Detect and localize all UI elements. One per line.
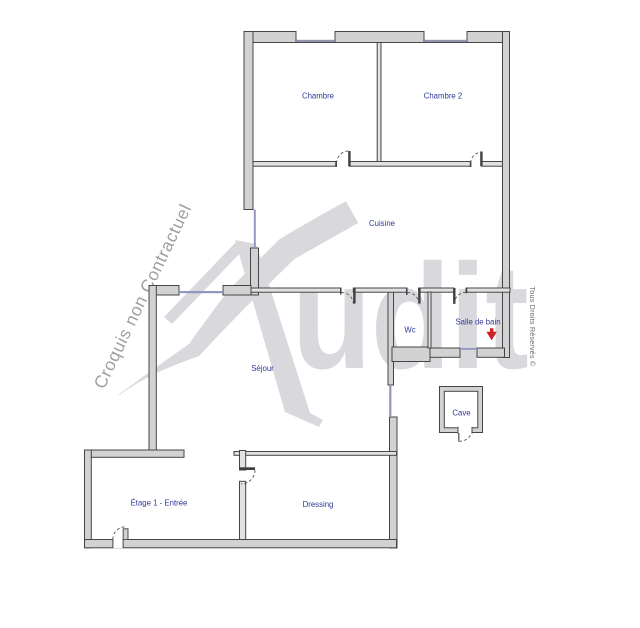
svg-text:Étage 1 - Entrée: Étage 1 - Entrée bbox=[131, 499, 188, 508]
svg-text:Wc: Wc bbox=[404, 326, 415, 335]
svg-text:Salle de bain: Salle de bain bbox=[455, 318, 500, 327]
svg-text:udit: udit bbox=[292, 233, 528, 400]
svg-text:Dressing: Dressing bbox=[303, 500, 334, 509]
svg-text:Chambre: Chambre bbox=[302, 92, 334, 101]
svg-text:Séjour: Séjour bbox=[251, 364, 274, 373]
svg-text:Tous Droits Réservés ©: Tous Droits Réservés © bbox=[528, 287, 537, 367]
svg-text:Cave: Cave bbox=[452, 409, 470, 418]
svg-text:Cuisine: Cuisine bbox=[369, 219, 395, 228]
svg-text:Chambre 2: Chambre 2 bbox=[424, 92, 463, 101]
